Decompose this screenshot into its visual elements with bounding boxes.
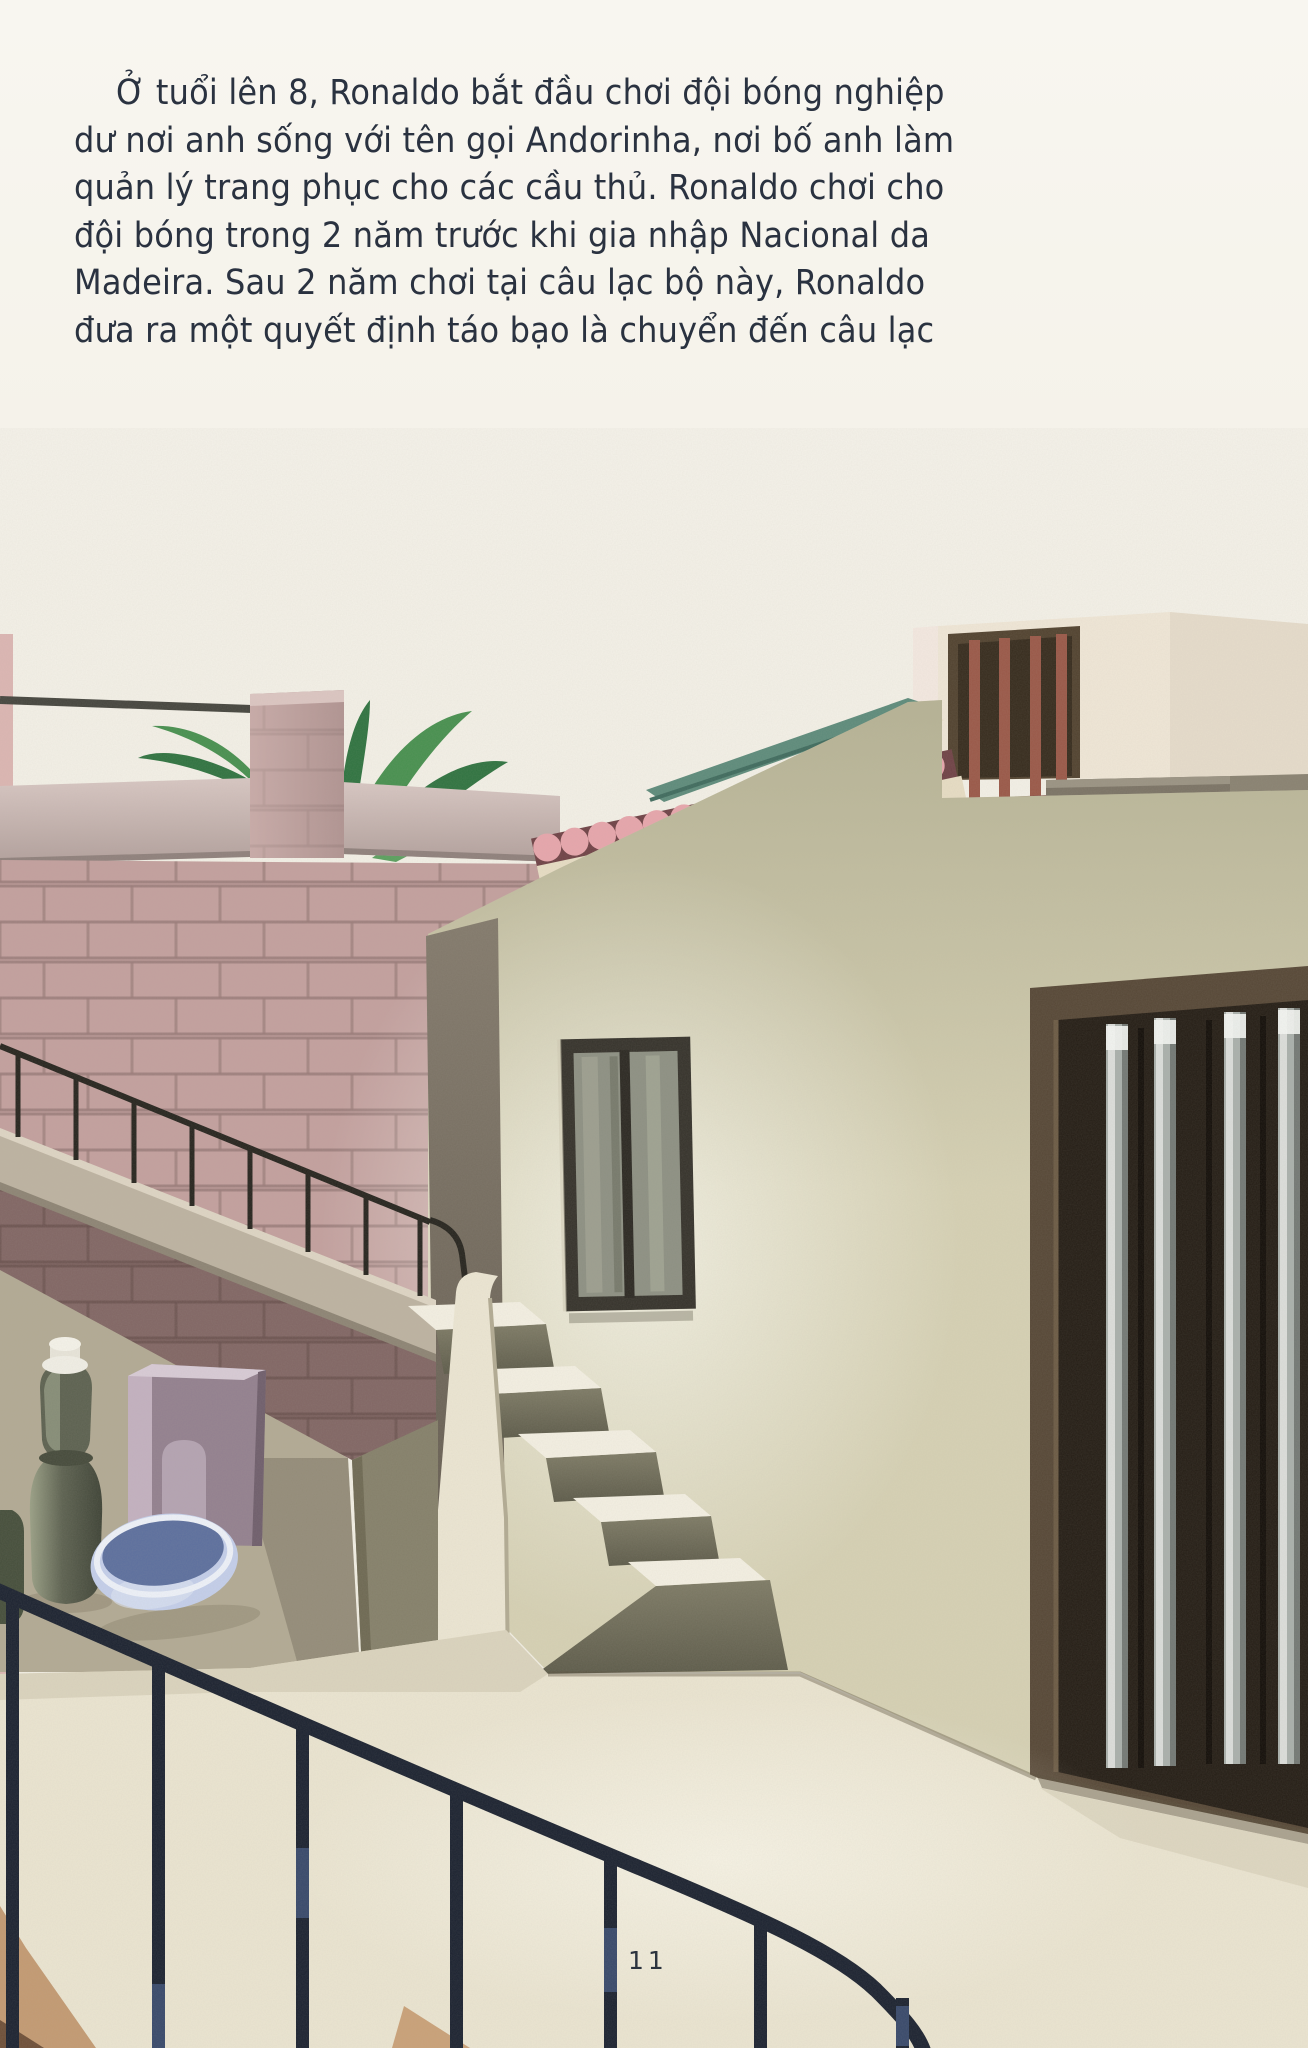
paragraph-line: dư nơi anh sống với tên gọi Andorinha, n… — [74, 118, 954, 166]
paper-grain — [0, 428, 1308, 2048]
paragraph-line: đội bóng trong 2 năm trước khi gia nhập … — [74, 213, 954, 261]
paragraph-line: quản lý trang phục cho các cầu thủ. Rona… — [74, 165, 954, 213]
paragraph-line: Madeira. Sau 2 năm chơi tại câu lạc bộ n… — [74, 260, 954, 308]
paragraph-line: đưa ra một quyết định táo bạo là chuyển … — [74, 308, 954, 356]
paragraph: Ở tuổi lên 8, Ronaldo bắt đầu chơi đội b… — [74, 70, 1036, 355]
page-number: 11 — [628, 1946, 688, 1975]
paragraph-line: Ở tuổi lên 8, Ronaldo bắt đầu chơi đội b… — [74, 70, 954, 118]
book-page: Ở tuổi lên 8, Ronaldo bắt đầu chơi đội b… — [0, 0, 1308, 2048]
house-illustration — [0, 428, 1308, 2048]
